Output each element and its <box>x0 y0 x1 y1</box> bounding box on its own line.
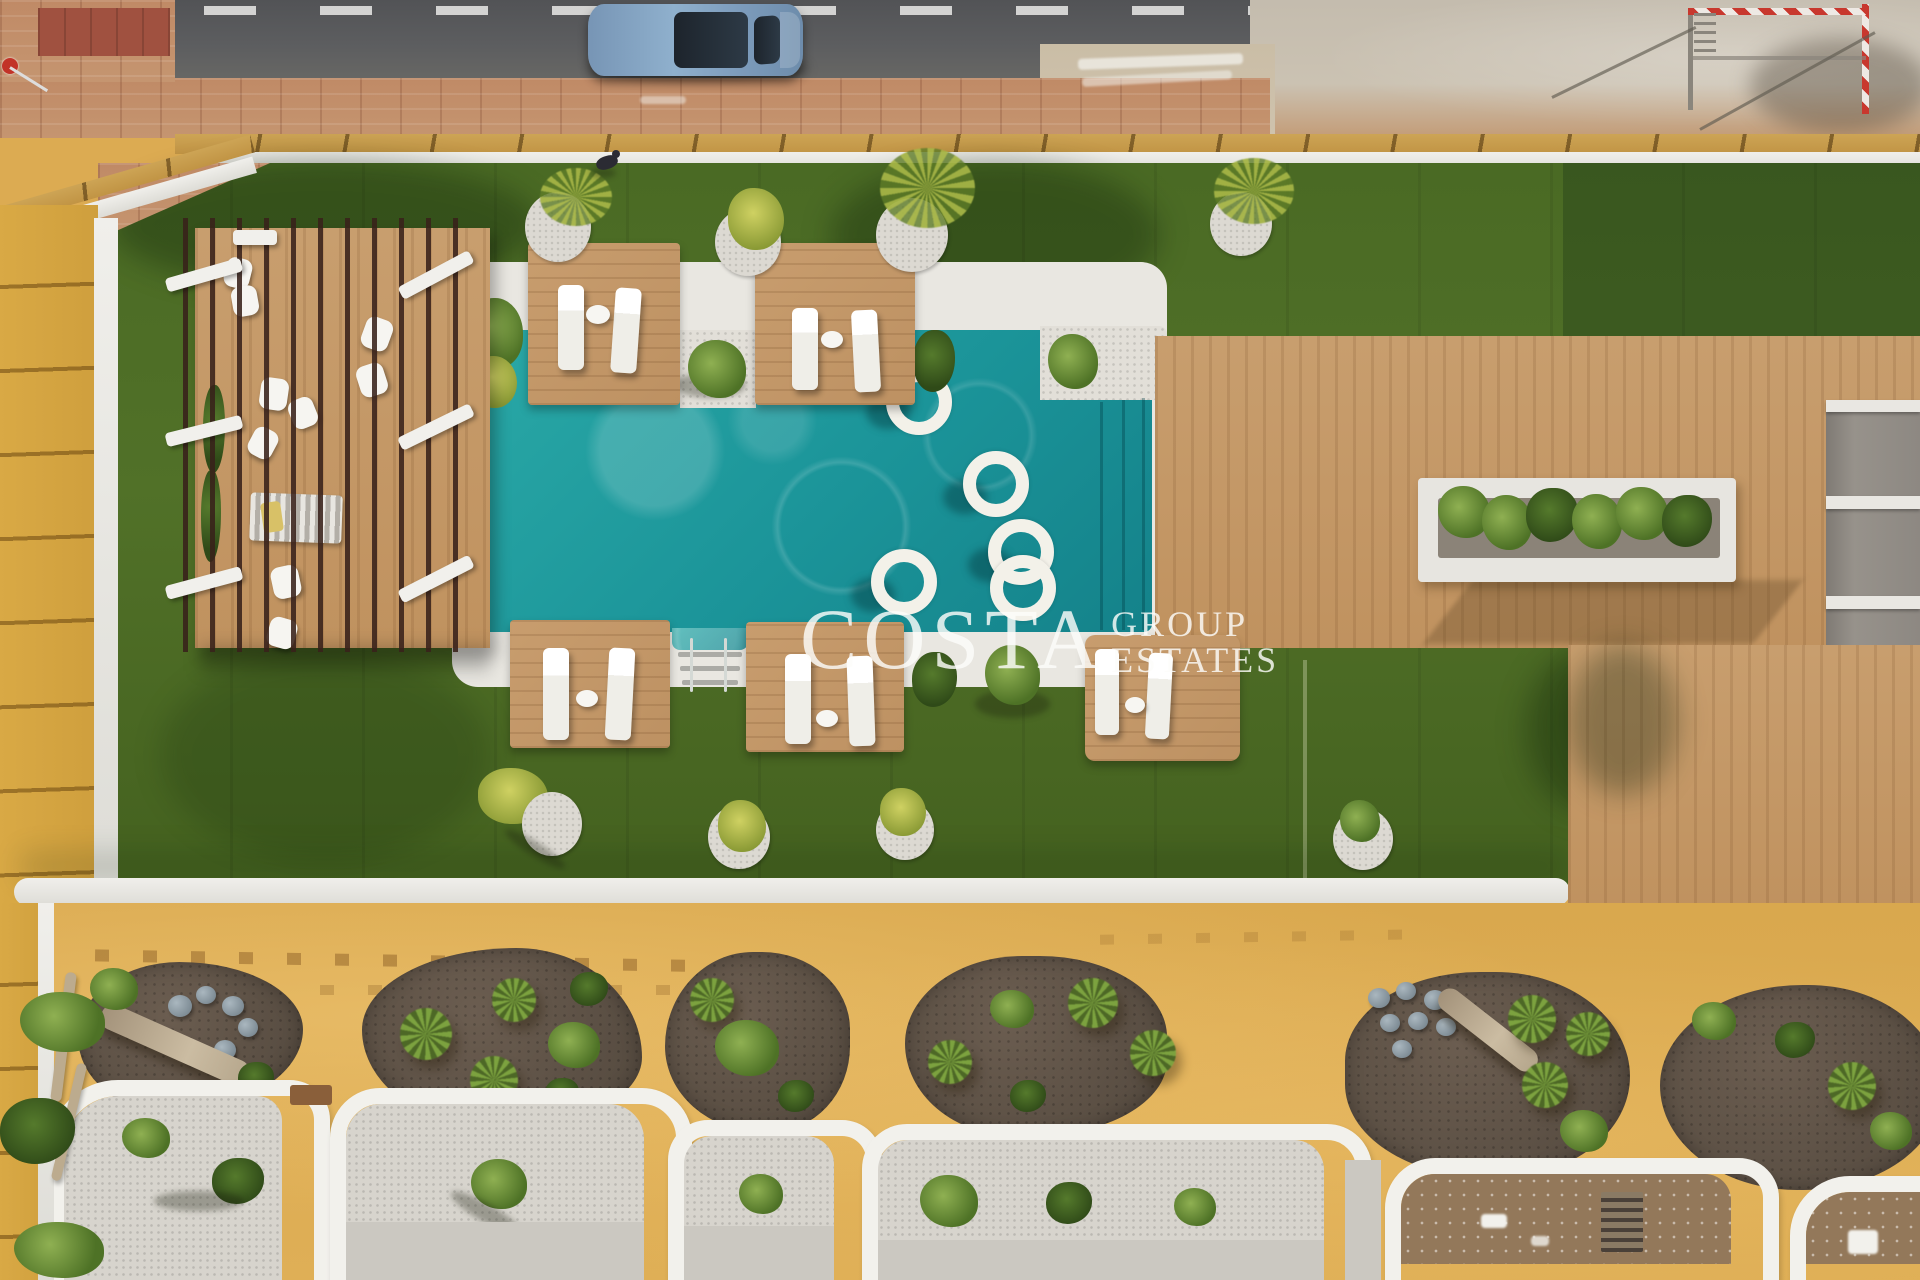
sun-deck-platform <box>510 620 670 748</box>
sidewalk-band <box>0 78 1270 138</box>
debris <box>1531 1236 1549 1246</box>
rocks <box>1436 1018 1456 1036</box>
plant <box>548 1022 600 1068</box>
path-between-plots <box>1345 1160 1381 1280</box>
watermark: COSTA GROUP ESTATES <box>800 596 1279 682</box>
plant <box>1174 1188 1216 1226</box>
agave-plant <box>1130 1030 1176 1076</box>
rocks <box>1392 1040 1412 1058</box>
watermark-line2: ESTATES <box>1111 642 1279 678</box>
sun-lounger <box>792 308 818 390</box>
rocks <box>1380 1014 1400 1032</box>
plant-shadow <box>154 1191 244 1211</box>
sun-lounger <box>605 647 636 740</box>
palm-bush <box>718 800 766 852</box>
boundary-wall-bottom <box>14 878 1570 906</box>
agave-plant <box>1068 978 1118 1028</box>
planter-plants <box>1482 495 1532 550</box>
rocks <box>196 986 216 1004</box>
plot-concrete <box>346 1222 644 1280</box>
plot-wall <box>1790 1176 1920 1280</box>
plant <box>1870 1112 1912 1150</box>
agave-plant <box>1566 1012 1610 1056</box>
planter-plants <box>1616 487 1668 540</box>
watermark-line1: GROUP <box>1111 606 1279 642</box>
sun-deck-platform <box>755 243 915 405</box>
plant <box>1560 1110 1608 1152</box>
deck-shadow <box>1568 645 1678 795</box>
sun-lounger <box>558 285 584 370</box>
step-handrail <box>690 638 693 692</box>
side-wall-yellow <box>0 205 98 907</box>
agave-plant <box>400 1008 452 1060</box>
balcony-divider <box>1826 400 1920 412</box>
rocks <box>238 1018 258 1037</box>
plot-concrete <box>684 1226 834 1280</box>
rocks <box>1368 988 1390 1008</box>
side-wall-white <box>94 218 118 908</box>
car <box>588 4 803 76</box>
sun-lounger <box>543 648 569 740</box>
plot-wall <box>330 1088 692 1280</box>
palm-bush <box>880 788 926 836</box>
deck-bench <box>233 230 277 245</box>
side-table <box>576 690 598 707</box>
balcony-divider <box>1826 596 1920 609</box>
aerial-photo-scene: COSTA GROUP ESTATES <box>0 0 1920 1280</box>
plot-dirt-construction <box>1401 1174 1731 1264</box>
plant <box>1048 334 1098 389</box>
red-paver-square <box>38 8 170 56</box>
plant <box>739 1174 783 1214</box>
plot-entry-wood <box>290 1085 332 1105</box>
sun-lounger <box>851 309 881 392</box>
plant <box>1692 1002 1736 1040</box>
planter-shadow <box>1423 580 1803 644</box>
planter-plants <box>1572 494 1622 549</box>
side-table <box>1125 697 1145 713</box>
side-table <box>821 331 843 348</box>
banana-plant <box>715 1020 779 1076</box>
agave-plant <box>928 1040 972 1084</box>
rocks <box>1408 1012 1428 1030</box>
plot-wall <box>862 1124 1372 1280</box>
car-roof-glass <box>674 12 748 68</box>
car-hood <box>780 12 800 68</box>
boundary-wall-top-cap <box>175 134 1920 154</box>
sun-deck-platform <box>528 243 680 405</box>
scaffold-mid-bar <box>1690 56 1866 60</box>
pool-step-tread <box>678 652 742 657</box>
debris <box>1481 1214 1507 1228</box>
plot-wall <box>668 1120 882 1280</box>
pallet <box>1601 1192 1643 1252</box>
turf-dark-section <box>1563 163 1920 341</box>
agave-plant <box>1508 995 1556 1043</box>
plant <box>990 990 1034 1028</box>
agave-plant <box>690 978 734 1022</box>
plant <box>920 1175 978 1227</box>
plant <box>90 968 138 1010</box>
pool-step-tread <box>680 666 740 671</box>
palm-bush <box>1340 800 1380 842</box>
agave-plant <box>492 978 536 1022</box>
side-table <box>586 305 610 324</box>
plot-wall <box>1385 1158 1779 1280</box>
paint-mark <box>640 96 686 104</box>
plant <box>122 1118 170 1158</box>
palm-tree <box>1214 158 1294 224</box>
side-table <box>816 710 838 727</box>
watermark-brand: COSTA <box>800 596 1105 682</box>
balcony-divider <box>1826 496 1920 509</box>
lawn-shadow <box>160 650 490 860</box>
plant <box>688 340 746 398</box>
pool-steps-notch <box>672 628 748 650</box>
rocks <box>168 995 192 1017</box>
palm-tree <box>728 188 784 250</box>
scaffold-ladder <box>1694 12 1716 52</box>
step-handrail <box>724 638 727 692</box>
agave-plant <box>1522 1062 1568 1108</box>
building-structure <box>1826 400 1920 685</box>
person-head <box>612 150 620 158</box>
debris-box <box>1848 1230 1878 1254</box>
palm-tree <box>880 148 975 228</box>
rocks <box>1396 982 1416 1000</box>
agave-plant <box>1828 1062 1876 1110</box>
pool-float-ring <box>963 451 1029 517</box>
sun-lounger <box>610 287 642 374</box>
rocks <box>222 996 244 1016</box>
car-windshield <box>754 15 780 65</box>
plot-concrete <box>878 1240 1324 1280</box>
